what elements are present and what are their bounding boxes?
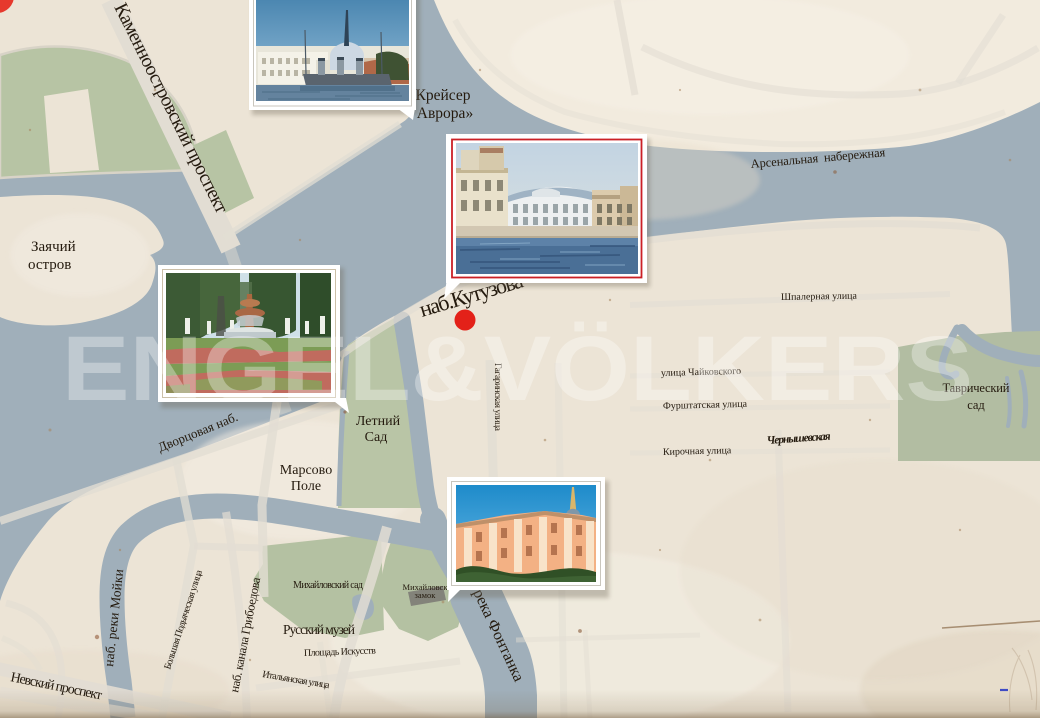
svg-text:Сад: Сад xyxy=(365,430,388,445)
svg-text:Аврора»: Аврора» xyxy=(417,105,473,122)
svg-text:ENGEL&VÖLKERS: ENGEL&VÖLKERS xyxy=(62,318,973,420)
svg-text:Шпалерная улица: Шпалерная улица xyxy=(781,291,858,303)
svg-text:Заячий: Заячий xyxy=(31,239,76,255)
svg-text:Русский музей: Русский музей xyxy=(283,622,355,637)
svg-text:Марсово: Марсово xyxy=(280,463,332,478)
svg-text:Кирочная улица: Кирочная улица xyxy=(663,445,732,458)
svg-text:замок: замок xyxy=(415,590,437,600)
svg-text:Крейсер: Крейсер xyxy=(416,87,471,104)
svg-text:остров: остров xyxy=(28,257,71,273)
svg-text:Михайловский сад: Михайловский сад xyxy=(293,580,363,591)
svg-text:Поле: Поле xyxy=(291,479,321,494)
